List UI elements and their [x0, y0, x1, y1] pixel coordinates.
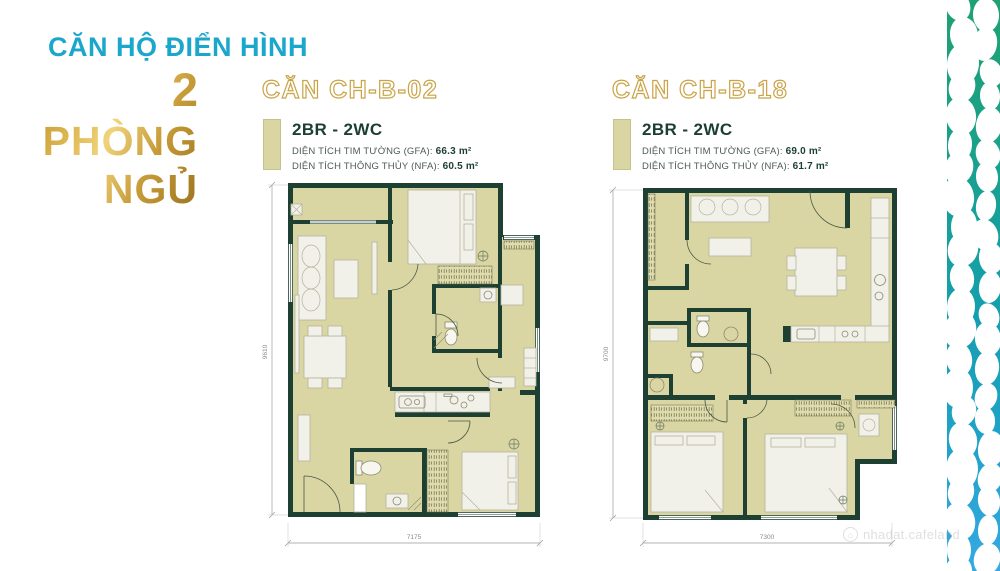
kitchen-counter-vertical	[871, 198, 889, 334]
unit2-gfa-value: 69.0 m²	[786, 146, 822, 157]
floor-plan-ch-b-02: 9610 7175	[258, 178, 568, 563]
bath2-sink	[386, 494, 408, 508]
pebble-pattern-strip	[942, 0, 1000, 571]
coffee-table	[709, 238, 751, 256]
unit2-nfa: DIỆN TÍCH THÔNG THỦY (NFA): 61.7 m²	[642, 161, 828, 172]
unit2-nfa-value: 61.7 m²	[793, 161, 829, 172]
hero-word-ngu: NGỦ	[18, 169, 198, 210]
unit1-gfa-label: DIỆN TÍCH TIM TƯỜNG (GFA):	[292, 146, 433, 157]
hero-word-phong: PHÒNG	[18, 121, 198, 162]
unit2-legend: 2BR - 2WC DIỆN TÍCH TIM TƯỜNG (GFA): 69.…	[613, 119, 828, 176]
bath-niche	[650, 328, 678, 341]
bath1-toilet	[445, 329, 457, 345]
dining-table	[795, 248, 837, 296]
unit1-dim-width-label: 7175	[407, 534, 422, 541]
watermark: ⌂ nhadat.cafeland	[843, 527, 960, 542]
bath1-toilet	[697, 321, 709, 337]
dining-table	[304, 336, 346, 378]
hero-number: 2	[18, 66, 198, 113]
unit1-name: CĂN CH-B-02	[262, 76, 438, 105]
coffee-table	[334, 260, 358, 298]
unit1-gfa: DIỆN TÍCH TIM TƯỜNG (GFA): 66.3 m²	[292, 146, 478, 157]
entry-cabinet	[298, 415, 310, 461]
unit1-dim-height-label: 9610	[262, 344, 269, 359]
page-title: CĂN HỘ ĐIỂN HÌNH	[48, 32, 308, 63]
unit1-gfa-value: 66.3 m²	[436, 146, 472, 157]
unit1-floor-swatch	[263, 119, 281, 170]
unit2-dim-width-label: 7300	[760, 534, 775, 541]
unit1-nfa-value: 60.5 m²	[443, 161, 479, 172]
shelf	[524, 348, 536, 386]
tv-cabinet	[372, 242, 377, 294]
unit1-nfa-label: DIỆN TÍCH THÔNG THỦY (NFA):	[292, 161, 440, 172]
unit2-gfa-label: DIỆN TÍCH TIM TƯỜNG (GFA):	[642, 146, 783, 157]
hero-bedroom-count: 2 PHÒNG NGỦ	[18, 66, 198, 210]
unit2-name: CĂN CH-B-18	[612, 76, 788, 105]
loggia-cabinet	[501, 285, 523, 305]
kitchen-counter-horizontal	[791, 326, 889, 342]
unit1-legend: 2BR - 2WC DIỆN TÍCH TIM TƯỜNG (GFA): 66.…	[263, 119, 478, 176]
unit2-nfa-label: DIỆN TÍCH THÔNG THỦY (NFA):	[642, 161, 790, 172]
bath2-door-slab	[354, 484, 366, 512]
kitchen-counter	[395, 392, 490, 412]
unit1-nfa: DIỆN TÍCH THÔNG THỦY (NFA): 60.5 m²	[292, 161, 478, 172]
unit2-floor-swatch	[613, 119, 631, 170]
unit1-type: 2BR - 2WC	[292, 120, 478, 140]
bath1-sink	[480, 288, 496, 302]
unit2-gfa: DIỆN TÍCH TIM TƯỜNG (GFA): 69.0 m²	[642, 146, 828, 157]
bath2-toilet	[361, 461, 381, 475]
washing-machine	[859, 414, 879, 436]
floor-plan-ch-b-18: 9700 7300	[603, 178, 913, 563]
unit2-dim-height-label: 9700	[603, 346, 610, 361]
watermark-house-icon: ⌂	[843, 527, 858, 542]
bench	[489, 377, 515, 388]
watermark-text: nhadat.cafeland	[863, 527, 960, 542]
bath2-toilet	[691, 357, 703, 373]
unit2-type: 2BR - 2WC	[642, 120, 828, 140]
